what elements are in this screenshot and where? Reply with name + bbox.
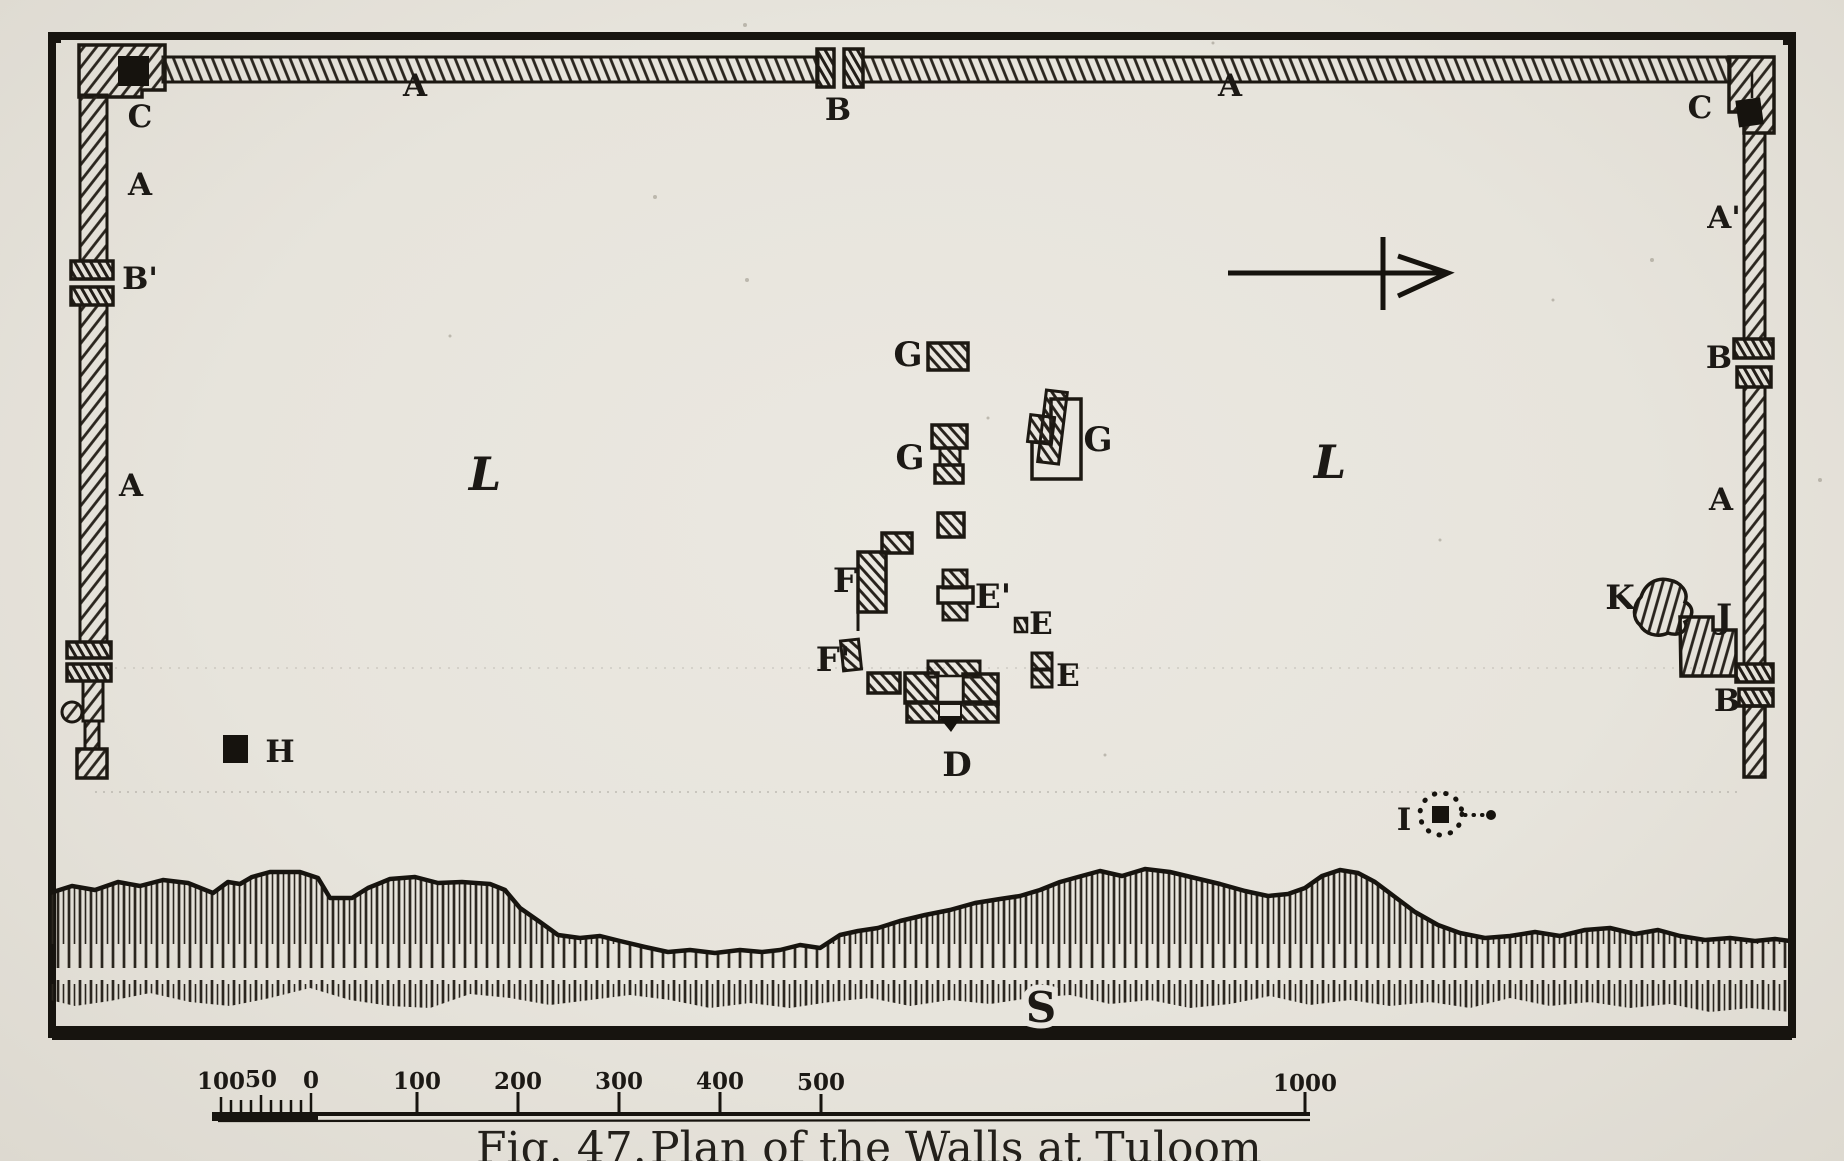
right-gate-upper-jamb-n [1734,339,1773,358]
scale-label-1000: 1000 [1273,1070,1337,1097]
structure-d [905,661,998,732]
scale-bar-subdivided-block [212,1112,318,1121]
label-s: S [1026,983,1056,1032]
right-gate-lower-jamb-s [1739,689,1773,706]
labels: C A B A C A B' A A' B A B G G G E' E E F… [118,68,1741,1032]
label-e-prime: E' [975,577,1011,617]
label-e-point: E [1029,606,1053,642]
figure-caption: Fig. 47. Plan of the Walls at Tuloom [476,1123,1262,1161]
right-wall-south-end [1744,706,1765,777]
label-i: I [1397,802,1412,838]
label-g-east: G [1083,420,1112,460]
label-right-wall-a-upper: A' [1706,200,1741,236]
label-top-gate-b: B [825,92,851,128]
structure-g-center [932,425,967,483]
left-wall [62,95,113,778]
label-f-south: F' [816,640,851,680]
structure-e-prime [938,570,973,620]
structure-f-north [858,533,912,631]
label-right-wall-a-lower: A [1708,482,1734,518]
label-l-east: L [1312,435,1346,489]
label-j: J [1713,597,1732,637]
corner-tower-nw [79,45,165,97]
figure-number: Fig. 47. [476,1123,647,1161]
tower-ne-chamber [1735,97,1764,127]
structure-g-east [1028,390,1081,479]
left-wall-south-end [77,749,107,778]
left-gate-upper-jamb-n [71,261,113,279]
scanned-plan-page: C A B A C A B' A A' B A B G G G E' E E F… [0,0,1844,1161]
label-e-south: E [1056,658,1080,694]
left-gate-lower-jamb-n [67,642,111,658]
label-f-north: F [833,561,857,601]
scale-bar: 100 50 0 100 200 300 400 500 1000 [197,1066,1337,1121]
structure-g-north [928,343,968,370]
label-right-gate-b-lower: B [1714,683,1740,719]
scale-minor-ticks [221,1093,311,1113]
structure-h [223,735,248,763]
label-k: K [1605,578,1636,618]
structure-oblong-west-of-d [868,673,900,693]
left-gate-lower-jamb-s [67,664,111,681]
scale-label-400: 400 [696,1068,744,1095]
sea-cliff [50,869,1790,1012]
corner-tower-ne [1729,57,1774,133]
label-top-wall-a-left: A [402,68,428,104]
cliff-hatching [50,869,1790,1012]
label-top-wall-a-right: A [1217,68,1243,104]
paper-specks [299,23,1823,907]
structure-i [1420,793,1496,835]
orientation-arrow-icon [1228,237,1448,310]
structure-small-square [938,513,964,537]
scale-label-500: 500 [797,1069,845,1096]
label-h: H [265,734,294,770]
scale-label-100: 100 [393,1068,441,1095]
plan-drawing: C A B A C A B' A A' B A B G G G E' E E F… [0,0,1844,1161]
label-l-west: L [467,447,501,501]
label-left-gate-b: B' [122,261,158,297]
tower-nw-chamber [118,56,149,86]
figure-title: Plan of the Walls at Tuloom [650,1123,1262,1161]
left-gate-upper-jamb-s [71,287,113,305]
label-corner-c-right: C [1688,90,1713,126]
structure-e-south [1032,653,1052,687]
label-g-north: G [893,335,922,375]
scale-label-200: 200 [494,1068,542,1095]
label-d: D [942,745,971,785]
scale-label-zero: 0 [303,1067,319,1094]
left-wall-round-structure [62,702,82,722]
top-gate-east-jamb [844,49,863,87]
scale-label-sub-100: 100 [197,1068,245,1095]
label-right-gate-b-upper: B [1706,340,1732,376]
top-wall [79,45,1774,133]
right-gate-lower-jamb-n [1736,664,1773,682]
structure-e-point [1015,618,1027,632]
label-left-wall-a-upper: A [127,167,153,203]
scale-label-sub-50: 50 [245,1066,277,1093]
label-left-wall-a-lower: A [118,468,144,504]
label-corner-c-left: C [128,99,153,135]
scale-label-300: 300 [595,1068,643,1095]
right-gate-upper-jamb-s [1737,367,1771,387]
label-g-center: G [895,438,924,478]
top-gate-west-jamb [817,49,834,87]
